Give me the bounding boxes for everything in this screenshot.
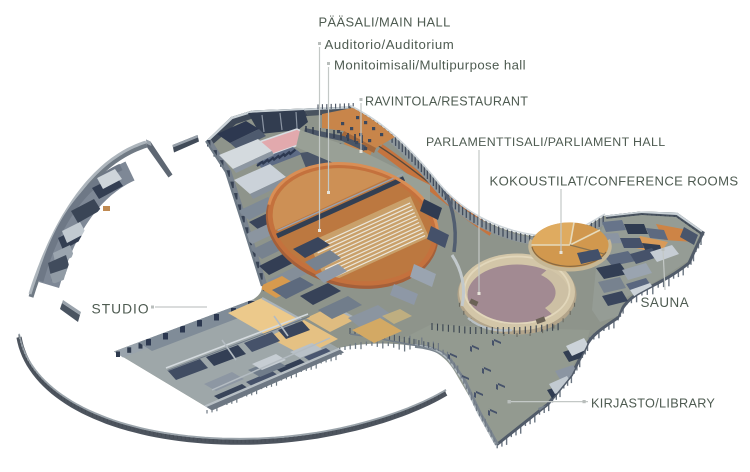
svg-text:RAVINTOLA/RESTAURANT: RAVINTOLA/RESTAURANT bbox=[365, 95, 528, 109]
svg-text:Auditorio/Auditorium: Auditorio/Auditorium bbox=[325, 37, 455, 52]
svg-text:SAUNA: SAUNA bbox=[641, 295, 690, 310]
svg-text:KOKOUSTILAT/CONFERENCE ROOMS: KOKOUSTILAT/CONFERENCE ROOMS bbox=[490, 174, 739, 189]
svg-text:PARLAMENTTISALI/PARLIAMENT HAL: PARLAMENTTISALI/PARLIAMENT HALL bbox=[426, 135, 665, 149]
svg-text:PÄÄSALI/MAIN HALL: PÄÄSALI/MAIN HALL bbox=[319, 15, 451, 30]
svg-text:KIRJASTO/LIBRARY: KIRJASTO/LIBRARY bbox=[591, 397, 715, 411]
svg-text:STUDIO: STUDIO bbox=[92, 302, 150, 317]
svg-text:Monitoimisali/Multipurpose hal: Monitoimisali/Multipurpose hall bbox=[334, 58, 526, 73]
